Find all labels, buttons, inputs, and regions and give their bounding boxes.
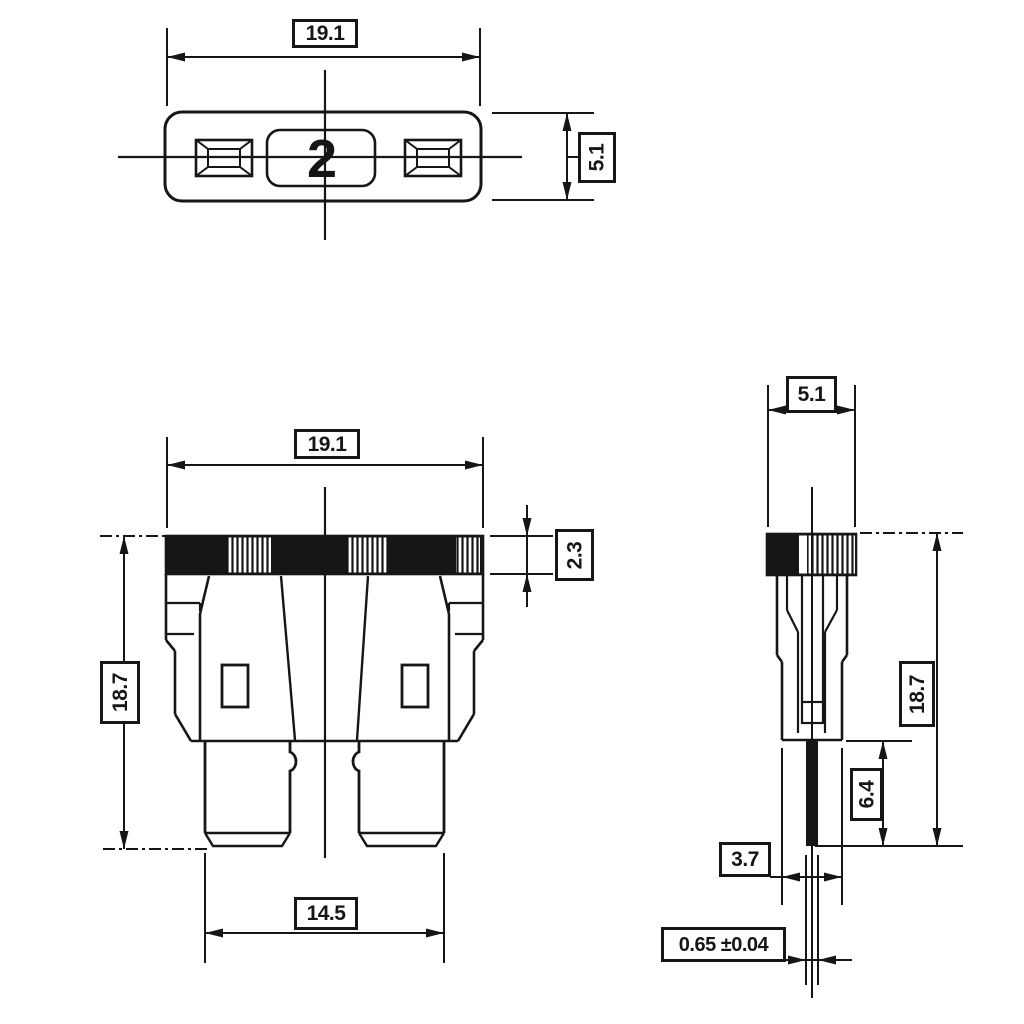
dim-label-front-height: 18.7 [100, 661, 140, 724]
dim-label-side-terminal-length: 6.4 [850, 768, 883, 821]
dim-label-side-height: 18.7 [899, 661, 935, 727]
fuse-dimension-drawing: 2 [0, 0, 1024, 1024]
dim-label-front-width: 19.1 [294, 429, 360, 459]
dim-label-front-cap-height: 2.3 [555, 529, 594, 581]
dim-label-side-terminal-thickness: 0.65 ±0.04 [661, 927, 786, 962]
amperage-marking: 2 [307, 129, 337, 189]
dim-label-top-height: 5.1 [578, 132, 616, 183]
front-view [100, 437, 553, 963]
dim-label-side-width: 5.1 [786, 376, 837, 413]
dim-label-side-base-width: 3.7 [719, 842, 771, 877]
dim-label-top-width: 19.1 [292, 19, 358, 48]
front-cap-dimension [490, 505, 553, 607]
drawing-linework: 2 [0, 0, 1024, 1024]
top-view: 2 [118, 28, 594, 240]
dim-label-front-terminal-span: 14.5 [294, 897, 358, 930]
